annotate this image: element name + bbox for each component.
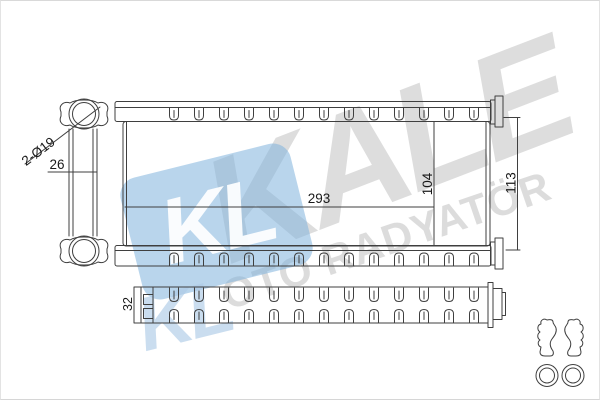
slot — [220, 108, 229, 121]
slot — [270, 310, 279, 323]
top-right-flange — [491, 96, 504, 127]
slot — [195, 108, 204, 121]
bottom-right-flange — [491, 238, 504, 269]
slot — [395, 108, 404, 121]
slot — [270, 253, 279, 266]
slot — [470, 288, 479, 302]
slot — [470, 108, 479, 121]
slot — [245, 108, 254, 121]
slot — [370, 108, 379, 121]
slot — [370, 288, 379, 302]
slot — [345, 288, 354, 302]
slot — [445, 253, 454, 266]
mounting-clip-right — [565, 319, 584, 356]
o-ring-left — [536, 365, 558, 387]
slot — [345, 310, 354, 323]
slot — [245, 253, 254, 266]
bottom-strip — [115, 246, 491, 267]
slot — [445, 310, 454, 323]
plan-right-flange — [488, 283, 506, 328]
top-strip-slots — [170, 108, 479, 121]
slot — [445, 108, 454, 121]
slot — [170, 108, 179, 121]
slot — [295, 310, 304, 323]
slot — [270, 288, 279, 302]
core-height-label: 104 — [420, 172, 435, 195]
slot — [320, 108, 329, 121]
slot — [345, 108, 354, 121]
technical-drawing-canvas: KALE OTO RADYATÖR KL KL — [0, 0, 600, 400]
end-cap-notch — [144, 295, 154, 305]
slot — [245, 288, 254, 302]
slot — [320, 253, 329, 266]
slot — [370, 310, 379, 323]
slot — [195, 288, 204, 302]
slot — [470, 253, 479, 266]
port-spacing-label: 26 — [49, 157, 64, 172]
slot — [420, 288, 429, 302]
heater-core-drawing: 2-Ø19 26 — [1, 1, 600, 400]
slot — [220, 288, 229, 302]
slot — [320, 288, 329, 302]
slot — [320, 310, 329, 323]
port-tubes — [69, 129, 97, 236]
slot — [470, 310, 479, 323]
side-view — [25, 99, 108, 266]
slot — [170, 253, 179, 266]
slot — [220, 310, 229, 323]
core-width-label: 293 — [308, 191, 331, 206]
plan-top-slots — [170, 288, 479, 302]
bottom-port-flange — [60, 236, 108, 266]
total-height-label: 113 — [504, 172, 519, 194]
slot — [345, 253, 354, 266]
slot — [395, 310, 404, 323]
top-strip — [115, 102, 491, 122]
slot — [445, 288, 454, 302]
plan-bottom-slots — [170, 310, 479, 323]
slot — [170, 288, 179, 302]
slot — [245, 310, 254, 323]
slot — [420, 310, 429, 323]
bottom-strip-slots — [170, 253, 479, 266]
plan-view — [134, 283, 506, 328]
slot — [295, 253, 304, 266]
slot — [295, 288, 304, 302]
slot — [295, 108, 304, 121]
slot — [370, 253, 379, 266]
slot — [195, 253, 204, 266]
accessory-parts — [536, 319, 584, 386]
mounting-clip-left — [538, 319, 557, 356]
slot — [420, 108, 429, 121]
slot — [270, 108, 279, 121]
slot — [420, 253, 429, 266]
slot — [395, 253, 404, 266]
core-depth-label: 32 — [121, 297, 135, 311]
slot — [395, 288, 404, 302]
slot — [220, 253, 229, 266]
top-port-flange — [60, 99, 108, 129]
front-view — [115, 96, 520, 269]
slot — [170, 310, 179, 323]
o-ring-right — [562, 365, 584, 387]
slot — [195, 310, 204, 323]
end-cap-notch — [144, 309, 154, 319]
